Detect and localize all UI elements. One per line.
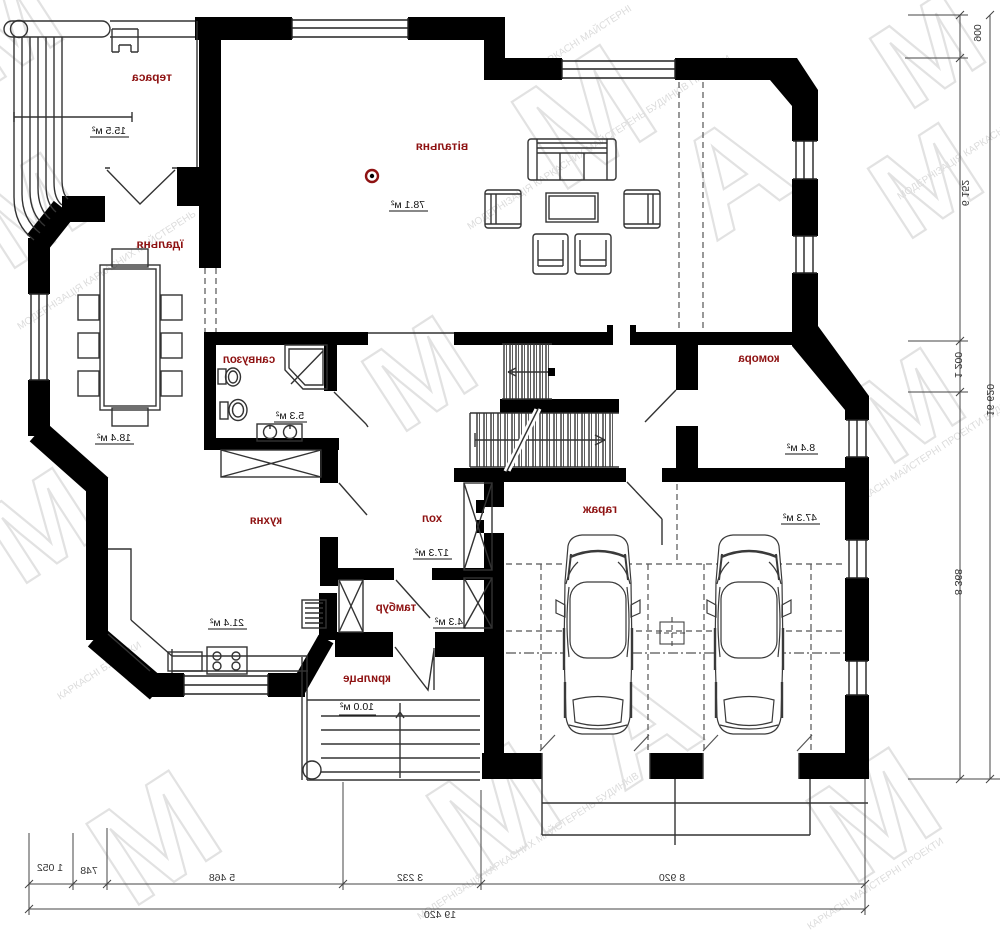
svg-text:їдальня: їдальня bbox=[137, 237, 185, 251]
svg-text:16 620: 16 620 bbox=[984, 384, 996, 416]
svg-text:78.1 м²: 78.1 м² bbox=[390, 199, 425, 211]
svg-text:тамбур: тамбур bbox=[376, 602, 417, 614]
svg-text:6 152: 6 152 bbox=[959, 180, 971, 206]
svg-text:47.3 м²: 47.3 м² bbox=[782, 512, 817, 524]
svg-text:1 052: 1 052 bbox=[37, 862, 63, 874]
svg-text:900: 900 bbox=[971, 24, 983, 42]
svg-text:748: 748 bbox=[80, 865, 98, 877]
svg-text:комора: комора bbox=[738, 353, 780, 365]
svg-text:10.0 м²: 10.0 м² bbox=[339, 701, 374, 713]
svg-text:крильце: крильце bbox=[343, 673, 391, 685]
svg-text:санвузол: санвузол bbox=[223, 354, 275, 366]
svg-text:8.4 м²: 8.4 м² bbox=[786, 442, 815, 454]
svg-text:5.3 м²: 5.3 м² bbox=[275, 410, 304, 422]
svg-text:кухня: кухня bbox=[250, 515, 282, 527]
svg-text:15.5 м²: 15.5 м² bbox=[91, 125, 126, 137]
svg-text:19 420: 19 420 bbox=[424, 909, 456, 921]
svg-text:вітальня: вітальня bbox=[416, 139, 469, 153]
svg-text:1 200: 1 200 bbox=[952, 352, 964, 378]
svg-text:3 232: 3 232 bbox=[397, 872, 423, 884]
svg-text:8 920: 8 920 bbox=[659, 872, 685, 884]
svg-text:4.3 м²: 4.3 м² bbox=[434, 616, 463, 628]
svg-text:хол: хол bbox=[422, 513, 442, 525]
svg-text:21.4 м²: 21.4 м² bbox=[209, 617, 244, 629]
svg-text:гараж: гараж bbox=[582, 502, 617, 516]
svg-text:5 468: 5 468 bbox=[209, 872, 235, 884]
svg-text:18.4 м²: 18.4 м² bbox=[96, 432, 131, 444]
svg-text:тераса: тераса bbox=[132, 70, 172, 84]
svg-text:17.3 м²: 17.3 м² bbox=[414, 547, 449, 559]
svg-text:8 368: 8 368 bbox=[952, 569, 964, 595]
